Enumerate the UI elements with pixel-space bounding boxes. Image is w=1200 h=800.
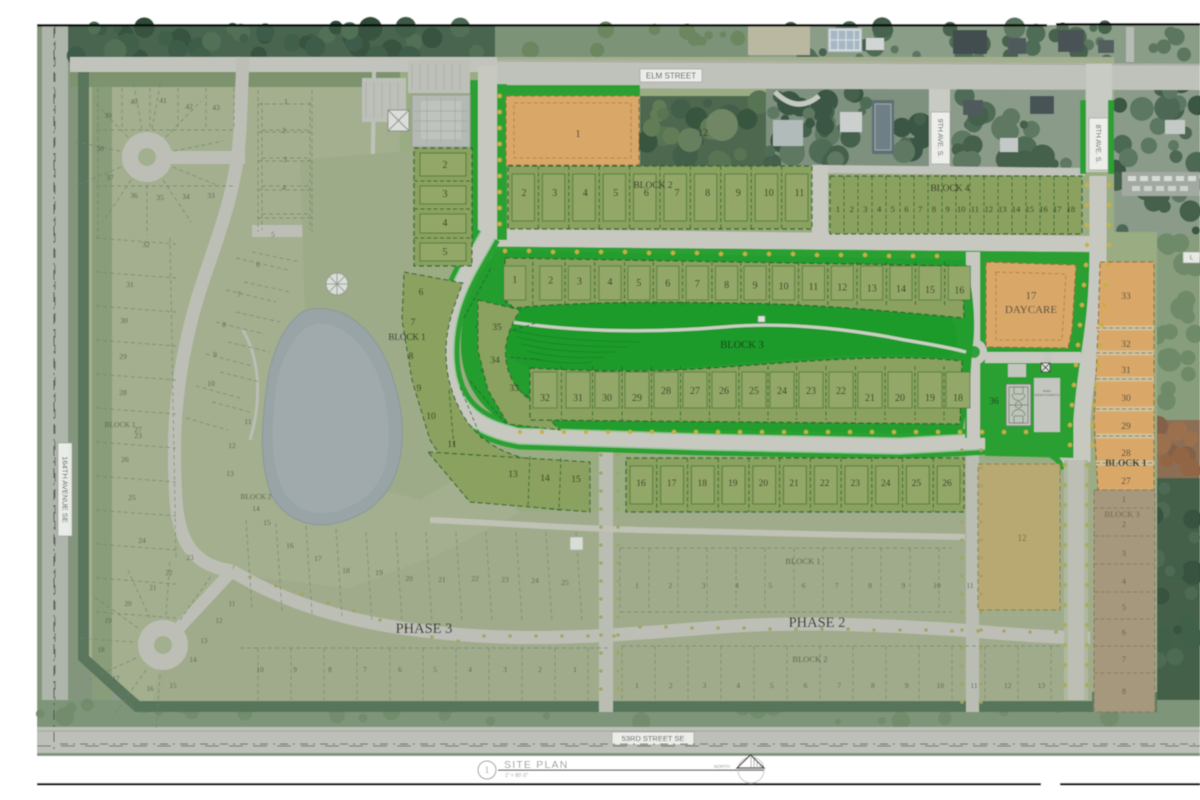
svg-text:SITE PLAN: SITE PLAN [504,759,568,771]
svg-text:1: 1 [485,765,490,775]
svg-text:NORTH: NORTH [714,764,730,769]
svg-text:1" = 80'-0": 1" = 80'-0" [505,773,528,779]
